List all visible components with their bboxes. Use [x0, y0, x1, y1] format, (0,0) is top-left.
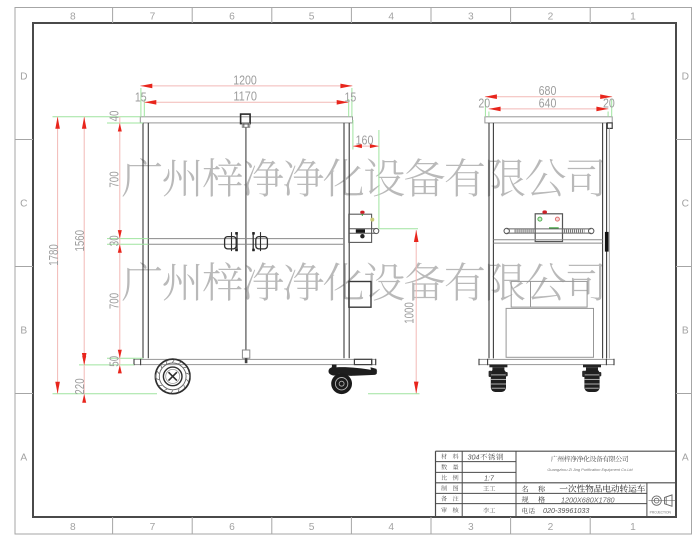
svg-text:D: D	[20, 72, 27, 83]
svg-text:220: 220	[73, 378, 87, 394]
svg-text:50: 50	[108, 356, 122, 367]
svg-text:4: 4	[388, 11, 394, 22]
svg-text:1: 1	[630, 11, 636, 22]
svg-text:700: 700	[108, 293, 122, 309]
svg-text:8: 8	[70, 11, 76, 22]
svg-text:8: 8	[70, 522, 76, 533]
svg-text:3: 3	[468, 522, 474, 533]
svg-text:5: 5	[309, 11, 315, 22]
svg-text:30: 30	[108, 235, 122, 246]
svg-text:20: 20	[478, 96, 490, 110]
svg-text:7: 7	[150, 522, 156, 533]
svg-text:020-39961033: 020-39961033	[543, 506, 589, 515]
svg-text:1: 1	[630, 522, 636, 533]
svg-text:1780: 1780	[47, 244, 61, 266]
svg-text:1000: 1000	[402, 302, 416, 324]
svg-text:640: 640	[539, 96, 557, 110]
svg-text:1:7: 1:7	[484, 475, 495, 482]
svg-text:Guangzhou Zi Jing Purification: Guangzhou Zi Jing Purification Equipment…	[547, 467, 633, 472]
svg-text:1560: 1560	[73, 230, 87, 252]
svg-text:700: 700	[108, 171, 122, 187]
svg-text:D: D	[682, 72, 689, 83]
svg-text:B: B	[682, 326, 689, 337]
svg-text:2: 2	[548, 11, 554, 22]
svg-text:A: A	[20, 453, 27, 464]
svg-text:A: A	[682, 453, 689, 464]
svg-text:304: 304	[468, 452, 480, 461]
svg-text:1170: 1170	[233, 90, 257, 104]
svg-text:6: 6	[229, 522, 235, 533]
svg-text:160: 160	[356, 134, 374, 148]
svg-text:20: 20	[603, 96, 615, 110]
svg-text:C: C	[20, 199, 27, 210]
svg-text:40: 40	[108, 111, 122, 122]
svg-text:15: 15	[345, 90, 357, 104]
svg-text:6: 6	[229, 11, 235, 22]
svg-text:2: 2	[548, 522, 554, 533]
svg-text:7: 7	[150, 11, 156, 22]
svg-text:B: B	[20, 326, 27, 337]
svg-text:1200X680X1780: 1200X680X1780	[561, 495, 615, 504]
svg-text:15: 15	[135, 90, 147, 104]
svg-text:PROJECTION: PROJECTION	[650, 510, 672, 514]
svg-text:C: C	[682, 199, 689, 210]
svg-text:1200: 1200	[233, 73, 257, 87]
svg-text:3: 3	[468, 11, 474, 22]
svg-text:5: 5	[309, 522, 315, 533]
svg-text:4: 4	[388, 522, 394, 533]
